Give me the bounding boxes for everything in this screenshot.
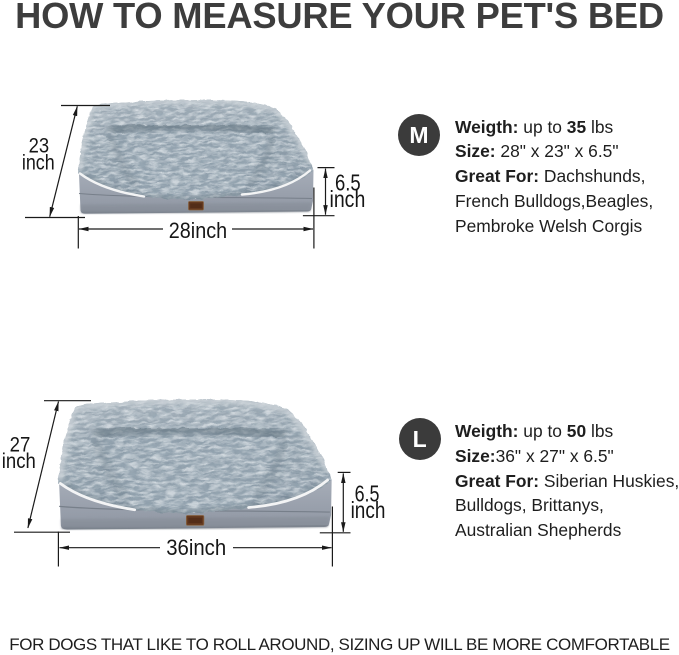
svg-text:inch: inch [330, 186, 366, 212]
svg-text:36inch: 36inch [166, 535, 226, 560]
svg-text:28inch: 28inch [169, 218, 227, 243]
svg-text:inch: inch [22, 152, 55, 175]
svg-text:inch: inch [2, 450, 36, 473]
svg-text:inch: inch [351, 497, 386, 523]
